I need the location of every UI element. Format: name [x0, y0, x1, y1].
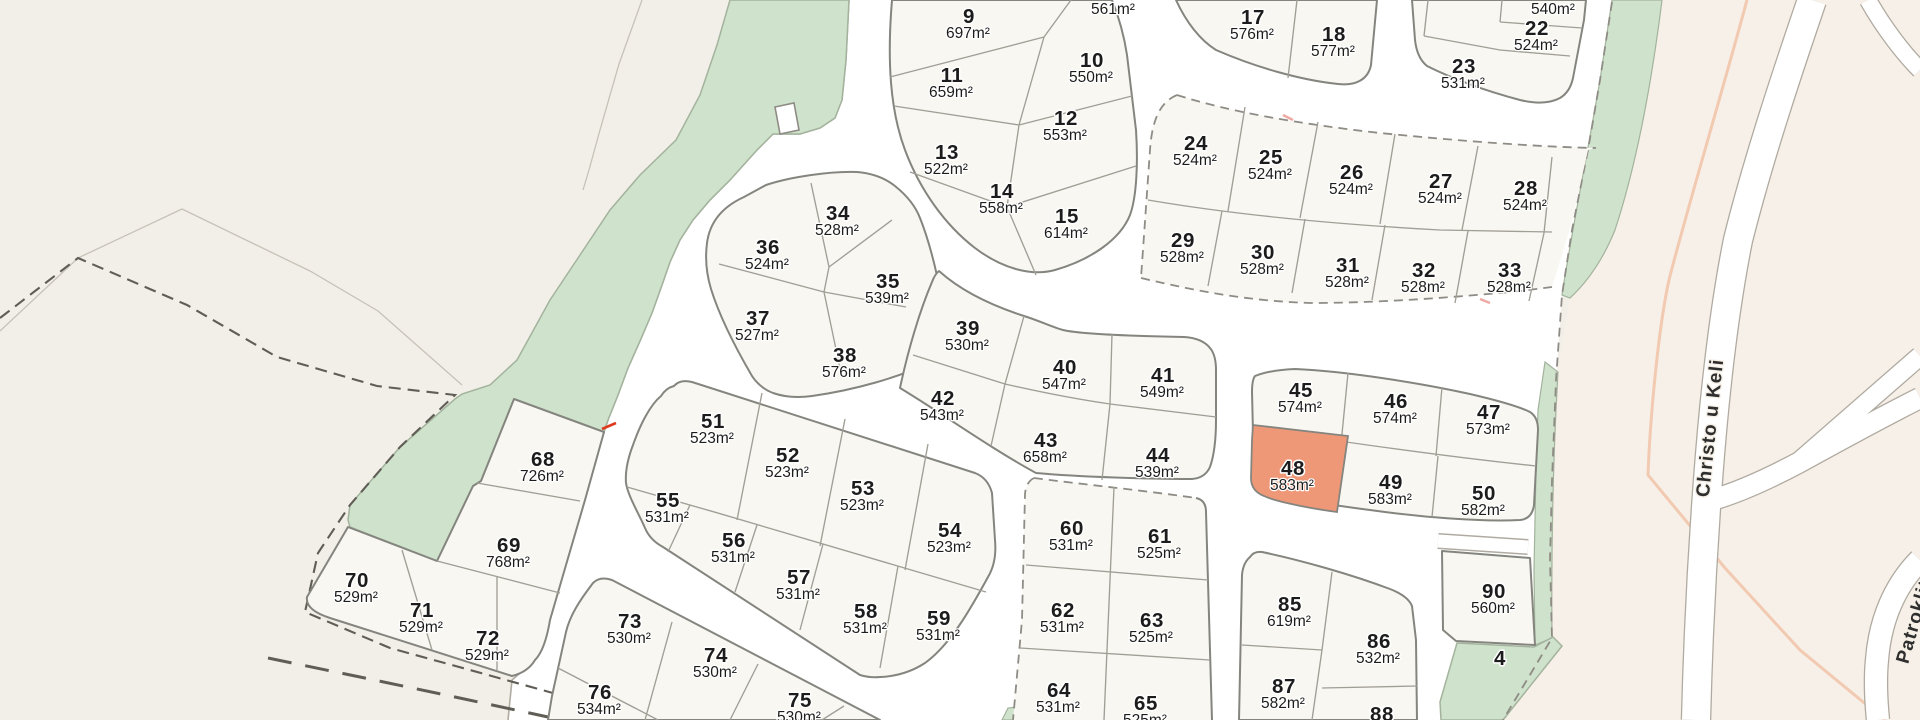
- svg-text:525m²: 525m²: [1123, 712, 1167, 720]
- svg-text:619m²: 619m²: [1267, 613, 1311, 630]
- svg-text:530m²: 530m²: [945, 337, 989, 354]
- svg-text:531m²: 531m²: [1040, 619, 1084, 636]
- svg-text:531m²: 531m²: [711, 549, 755, 566]
- svg-text:577m²: 577m²: [1311, 43, 1355, 60]
- svg-text:531m²: 531m²: [776, 586, 820, 603]
- svg-text:534m²: 534m²: [577, 701, 621, 718]
- svg-text:530m²: 530m²: [607, 630, 651, 647]
- svg-text:540m²: 540m²: [1531, 1, 1575, 18]
- svg-text:614m²: 614m²: [1044, 225, 1088, 242]
- svg-text:531m²: 531m²: [843, 620, 887, 637]
- svg-text:528m²: 528m²: [815, 222, 859, 239]
- svg-text:550m²: 550m²: [1069, 69, 1113, 86]
- svg-text:697m²: 697m²: [946, 25, 990, 42]
- svg-text:576m²: 576m²: [1230, 26, 1274, 43]
- svg-text:539m²: 539m²: [1135, 464, 1179, 481]
- svg-text:529m²: 529m²: [465, 647, 509, 664]
- svg-text:523m²: 523m²: [690, 430, 734, 447]
- svg-text:532m²: 532m²: [1356, 650, 1400, 667]
- svg-text:531m²: 531m²: [645, 509, 689, 526]
- svg-text:574m²: 574m²: [1278, 399, 1322, 416]
- svg-text:524m²: 524m²: [1329, 181, 1373, 198]
- svg-text:529m²: 529m²: [399, 619, 443, 636]
- svg-text:525m²: 525m²: [1129, 629, 1173, 646]
- svg-text:576m²: 576m²: [822, 364, 866, 381]
- svg-text:4: 4: [1494, 647, 1506, 670]
- svg-text:658m²: 658m²: [1023, 449, 1067, 466]
- svg-text:528m²: 528m²: [1325, 274, 1369, 291]
- svg-text:549m²: 549m²: [1140, 384, 1184, 401]
- svg-text:726m²: 726m²: [520, 468, 564, 485]
- svg-text:547m²: 547m²: [1042, 376, 1086, 393]
- svg-text:582m²: 582m²: [1461, 502, 1505, 519]
- svg-text:543m²: 543m²: [920, 407, 964, 424]
- svg-text:528m²: 528m²: [1487, 279, 1531, 296]
- svg-text:524m²: 524m²: [1248, 166, 1292, 183]
- svg-text:583m²: 583m²: [1368, 491, 1412, 508]
- svg-text:558m²: 558m²: [979, 200, 1023, 217]
- svg-text:528m²: 528m²: [1240, 261, 1284, 278]
- svg-text:523m²: 523m²: [840, 497, 884, 514]
- svg-text:531m²: 531m²: [1036, 699, 1080, 716]
- svg-text:560m²: 560m²: [1471, 600, 1515, 617]
- svg-text:524m²: 524m²: [1418, 190, 1462, 207]
- svg-text:539m²: 539m²: [865, 290, 909, 307]
- svg-text:88: 88: [1370, 703, 1394, 720]
- svg-text:531m²: 531m²: [1441, 75, 1485, 92]
- svg-text:561m²: 561m²: [1091, 1, 1135, 18]
- svg-text:524m²: 524m²: [1514, 37, 1558, 54]
- svg-text:524m²: 524m²: [1503, 197, 1547, 214]
- svg-text:659m²: 659m²: [929, 84, 973, 101]
- svg-text:531m²: 531m²: [916, 627, 960, 644]
- svg-text:527m²: 527m²: [735, 327, 779, 344]
- svg-text:523m²: 523m²: [927, 539, 971, 556]
- svg-text:530m²: 530m²: [777, 709, 821, 720]
- svg-text:582m²: 582m²: [1261, 695, 1305, 712]
- svg-text:524m²: 524m²: [745, 256, 789, 273]
- svg-text:531m²: 531m²: [1049, 537, 1093, 554]
- svg-text:523m²: 523m²: [765, 464, 809, 481]
- svg-text:528m²: 528m²: [1401, 279, 1445, 296]
- svg-text:528m²: 528m²: [1160, 249, 1204, 266]
- svg-text:529m²: 529m²: [334, 589, 378, 606]
- svg-text:553m²: 553m²: [1043, 127, 1087, 144]
- svg-text:530m²: 530m²: [693, 664, 737, 681]
- svg-text:524m²: 524m²: [1173, 152, 1217, 169]
- svg-text:583m²: 583m²: [1270, 477, 1314, 494]
- svg-text:573m²: 573m²: [1466, 421, 1510, 438]
- svg-text:574m²: 574m²: [1373, 410, 1417, 427]
- svg-text:768m²: 768m²: [486, 554, 530, 571]
- svg-text:525m²: 525m²: [1137, 545, 1181, 562]
- svg-text:522m²: 522m²: [924, 161, 968, 178]
